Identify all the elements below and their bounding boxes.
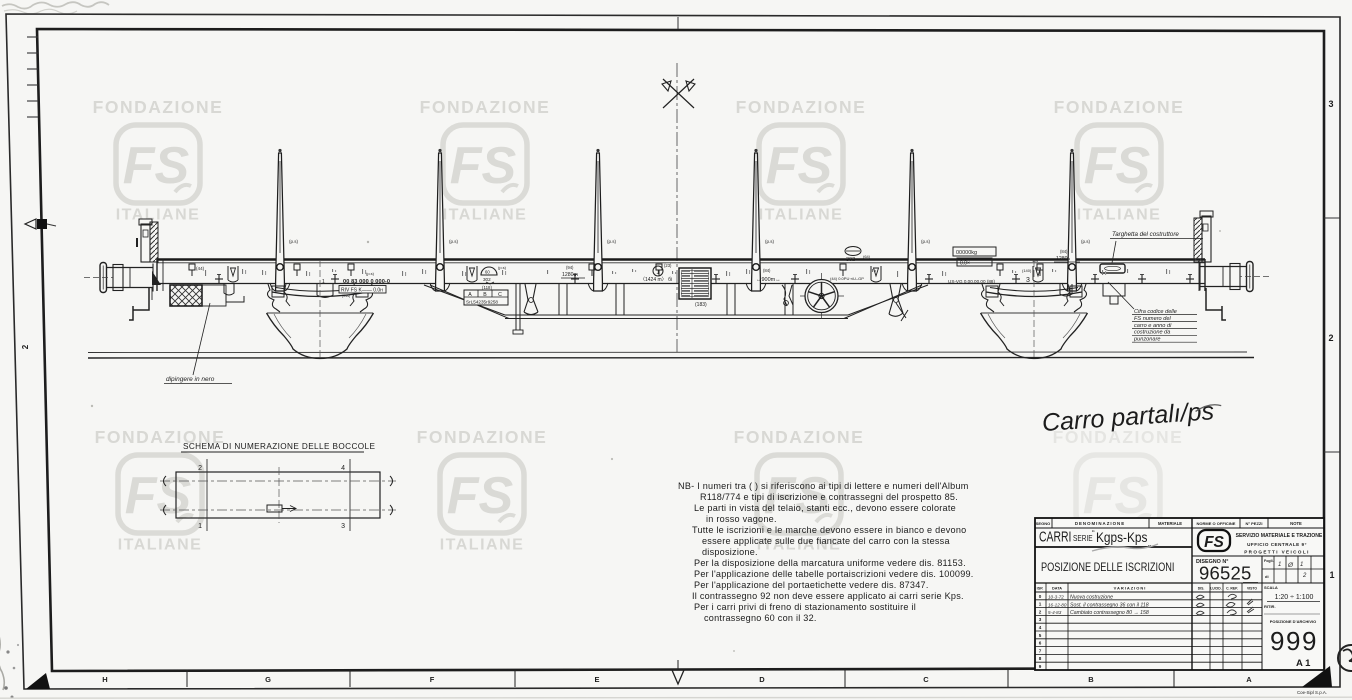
- svg-text:RITIR.: RITIR.: [1264, 604, 1276, 609]
- svg-text:B: B: [483, 292, 487, 298]
- svg-text:5: 5: [1039, 633, 1042, 638]
- svg-text:(84): (84): [1060, 249, 1068, 254]
- svg-text:(p.s): (p.s): [1081, 239, 1091, 244]
- svg-text:SERIE: SERIE: [1073, 533, 1093, 543]
- svg-text:(140): (140): [1022, 268, 1032, 273]
- svg-text:E: E: [594, 675, 599, 684]
- svg-text:302: 302: [846, 257, 855, 263]
- svg-text:Per la disposizione della marc: Per la disposizione della marcatura unif…: [694, 558, 966, 568]
- svg-text:C. REP.: C. REP.: [1226, 587, 1238, 591]
- svg-text:60: 60: [485, 270, 490, 275]
- svg-text:5-4-83: 5-4-83: [1048, 610, 1062, 615]
- svg-text:DATA: DATA: [1052, 587, 1062, 591]
- svg-text:00000kg: 00000kg: [956, 250, 977, 256]
- svg-text:2: 2: [1302, 573, 1307, 579]
- svg-text:3: 3: [341, 523, 345, 530]
- svg-text:2: 2: [21, 344, 30, 349]
- svg-text:(94): (94): [566, 265, 574, 270]
- svg-text:4: 4: [1039, 625, 1042, 630]
- svg-text:Per l'applicazione delle tabel: Per l'applicazione delle tabelle portais…: [694, 569, 974, 579]
- svg-text:0.0×: 0.0×: [960, 261, 970, 267]
- svg-text:114: 114: [1032, 259, 1038, 263]
- svg-text:costruzione da: costruzione da: [1134, 330, 1170, 336]
- svg-text:(p.s): (p.s): [289, 239, 299, 244]
- svg-text:(44) 0.0PU·гіU–GP: (44) 0.0PU·гіU–GP: [830, 276, 864, 281]
- svg-text:2: 2: [1039, 609, 1042, 614]
- svg-text:SCALA: SCALA: [1264, 585, 1278, 590]
- svg-text:POSIZIONE DELLE ISCRIZIONI: POSIZIONE DELLE ISCRIZIONI: [1041, 561, 1174, 574]
- svg-text:POSIZIONE D’ARCHIVIO: POSIZIONE D’ARCHIVIO: [1270, 619, 1316, 624]
- svg-text:(p.s): (p.s): [498, 265, 507, 270]
- svg-text:1: 1: [1039, 602, 1042, 607]
- svg-text:VARIAZIONI: VARIAZIONI: [1114, 586, 1147, 591]
- svg-text:9: 9: [1039, 664, 1042, 669]
- svg-text:1:20 ÷ 1:100: 1:20 ÷ 1:100: [1275, 594, 1314, 601]
- svg-text:NB- I numeri tra ( ) si rifer: NB- I numeri tra ( ) si riferiscono ai t…: [678, 481, 969, 491]
- svg-text:3: 3: [1039, 617, 1042, 622]
- svg-text:3: 3: [1328, 99, 1333, 109]
- svg-text:ISP.: ISP.: [1037, 587, 1044, 591]
- svg-text:〈1424 m〉 бі: 〈1424 m〉 бі: [640, 277, 672, 283]
- svg-text:96525: 96525: [1199, 563, 1251, 584]
- svg-text:302: 302: [483, 277, 491, 282]
- svg-text:(p.s): (p.s): [449, 239, 459, 244]
- svg-text:1280m: 1280m: [562, 272, 578, 278]
- svg-text:2: 2: [198, 465, 202, 472]
- svg-text:LUCID.: LUCID.: [1210, 587, 1221, 591]
- svg-text:FS: FS: [1204, 534, 1224, 551]
- svg-text:SгL54235г9258: SгL54235г9258: [466, 299, 498, 304]
- svg-text:2: 2: [1328, 333, 1333, 343]
- svg-text:C: C: [923, 675, 929, 684]
- svg-text:Tutte le iscrizioni e le march: Tutte le iscrizioni e le marche devono e…: [692, 525, 966, 535]
- svg-text:Le parti in vista del telaio,: Le parti in vista del telaio, stanti ecc…: [694, 503, 956, 513]
- svg-text:SEGNO: SEGNO: [1036, 521, 1050, 526]
- svg-text:F: F: [430, 675, 435, 684]
- svg-text:Cifra codice delle: Cifra codice delle: [1134, 309, 1177, 315]
- svg-text:(p.s): (p.s): [366, 271, 375, 276]
- svg-text:SERVIZIO MATERIALE E TRAZIONE: SERVIZIO MATERIALE E TRAZIONE: [1236, 533, 1323, 539]
- svg-text:A: A: [468, 292, 472, 298]
- svg-text:Carro partalı/ps: Carro partalı/ps: [1041, 397, 1215, 437]
- svg-text:999: 999: [1270, 626, 1318, 656]
- svg-text:(p.s): (p.s): [765, 239, 775, 244]
- svg-text:N° PEZZI: N° PEZZI: [1246, 521, 1263, 526]
- svg-text:contrassegno 60 con il 32.: contrassegno 60 con il 32.: [704, 613, 817, 623]
- svg-text:punzonare: punzonare: [1133, 337, 1160, 343]
- svg-text:(23): (23): [664, 263, 672, 268]
- svg-text:1: 1: [656, 269, 660, 276]
- svg-text:Ø: Ø: [1287, 562, 1294, 569]
- svg-text:Fogli.: Fogli.: [1264, 559, 1274, 563]
- svg-text:DENOMINAZIONE: DENOMINAZIONE: [1075, 521, 1125, 526]
- svg-text:1: 1: [1300, 562, 1303, 568]
- svg-text:C: C: [498, 292, 502, 298]
- svg-text:DIS.: DIS.: [1198, 587, 1205, 591]
- svg-text:(64): (64): [863, 254, 871, 259]
- svg-text:4: 4: [341, 465, 345, 472]
- svg-text:A: A: [1246, 675, 1252, 684]
- svg-text:MATERIALE: MATERIALE: [1158, 521, 1182, 526]
- svg-text:Per l'applicazione del portaet: Per l'applicazione del portaetichette ve…: [694, 580, 929, 590]
- svg-text:Targhetta del costruttore: Targhetta del costruttore: [1112, 231, 1179, 238]
- svg-text:dipingere in nero: dipingere in nero: [166, 376, 215, 383]
- svg-text:carro e anno di: carro e anno di: [1134, 323, 1172, 329]
- svg-text:A 1: A 1: [1296, 658, 1311, 669]
- svg-text:PROGETTI VEICOLI: PROGETTI VEICOLI: [1244, 550, 1310, 555]
- svg-text:(44): (44): [196, 266, 205, 271]
- svg-text:0: 0: [1039, 594, 1042, 599]
- svg-text:10-3-72: 10-3-72: [1048, 595, 1064, 600]
- svg-text:1: 1: [198, 523, 202, 530]
- svg-text:Coe-Sipl S.p.A.: Coe-Sipl S.p.A.: [1297, 690, 1327, 695]
- svg-text:1: 1: [1278, 562, 1281, 568]
- svg-text:B: B: [1088, 675, 1094, 684]
- svg-text:CARRI: CARRI: [1039, 529, 1071, 545]
- svg-text:NOTE: NOTE: [1290, 521, 1302, 526]
- svg-text:↔900m↔: ↔900m↔: [756, 277, 781, 283]
- svg-text:“: “: [1092, 529, 1095, 538]
- svg-text:D: D: [759, 675, 765, 684]
- svg-text:in rosso vagone.: in rosso vagone.: [706, 514, 777, 524]
- svg-text:VISTO: VISTO: [1247, 587, 1257, 591]
- svg-text:(118): (118): [482, 285, 492, 290]
- svg-text:Il contrassegno 92 non deve es: Il contrassegno 92 non deve essere appli…: [692, 591, 964, 601]
- svg-text:(183): (183): [695, 302, 707, 308]
- svg-text:(p.s): (p.s): [607, 239, 617, 244]
- svg-text:6: 6: [1039, 641, 1042, 646]
- svg-text:1: 1: [1329, 570, 1334, 580]
- svg-text:H: H: [102, 675, 107, 684]
- svg-text:8: 8: [1039, 656, 1042, 661]
- svg-text:disposizione.: disposizione.: [702, 547, 758, 557]
- svg-text:(84): (84): [763, 268, 771, 273]
- svg-text:UFFICIO CENTRALE 9°: UFFICIO CENTRALE 9°: [1247, 542, 1307, 547]
- svg-text:US-VG 0.00.00.00 (88): US-VG 0.00.00.00 (88): [948, 279, 995, 284]
- svg-text:3: 3: [1026, 277, 1030, 284]
- svg-text:16-12-80: 16-12-80: [1048, 602, 1067, 607]
- svg-text:7: 7: [1039, 648, 1042, 653]
- svg-text:RIV FS K—— 0.0н: RIV FS K—— 0.0н: [341, 287, 383, 293]
- svg-text:Per i carri privi di freno di: Per i carri privi di freno di stazioname…: [694, 602, 916, 612]
- svg-text:NORME O OFFICINE: NORME O OFFICINE: [1197, 521, 1236, 526]
- svg-text:Kgps-Kps: Kgps-Kps: [1096, 529, 1147, 545]
- svg-text:00 83 000 0 000-0: 00 83 000 0 000-0: [343, 279, 390, 285]
- svg-text:1: 1: [322, 279, 325, 285]
- svg-text:G: G: [265, 675, 271, 684]
- svg-text:SCHEMA DI NUMERAZIONE DELLE: SCHEMA DI NUMERAZIONE DELLE BOCCOLE: [183, 442, 375, 451]
- svg-text:essere applicate sulle due fi: essere applicate sulle due fiancate del …: [702, 536, 950, 546]
- svg-text:di: di: [1265, 574, 1269, 579]
- svg-text:1280ь: 1280ь: [1056, 256, 1071, 262]
- svg-text:(04s): (04s): [342, 294, 350, 298]
- svg-text:R118/774 e tipi di iscrizione: R118/774 e tipi di iscrizione e contrass…: [700, 492, 958, 502]
- svg-text:(p.s): (p.s): [921, 239, 931, 244]
- svg-text:FS numero del: FS numero del: [1134, 316, 1171, 322]
